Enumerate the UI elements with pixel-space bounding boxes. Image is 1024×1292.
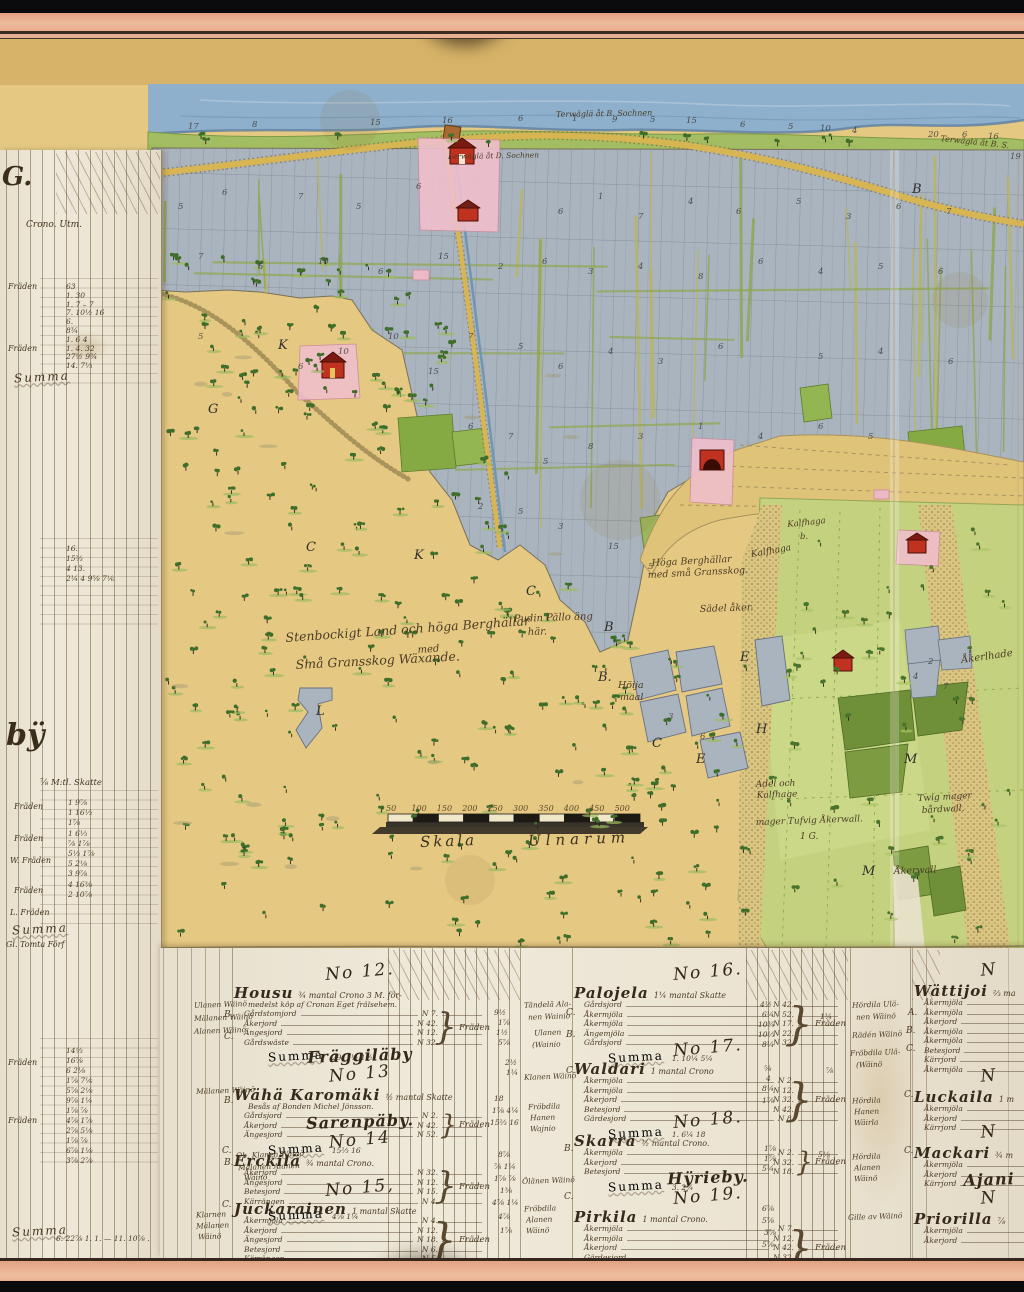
column-divider xyxy=(572,948,573,1258)
frame-edge-top xyxy=(0,0,1024,14)
ledger-slanted-headers xyxy=(388,950,520,1000)
hill-symbol xyxy=(220,862,239,866)
ledger-rows xyxy=(40,278,158,388)
hill-symbol xyxy=(222,392,232,397)
hill-symbol xyxy=(259,444,278,447)
hill-symbol xyxy=(172,684,188,688)
hill-symbol xyxy=(548,552,564,555)
meadow xyxy=(738,498,1024,950)
frame-band-top xyxy=(0,13,1024,32)
column-divider xyxy=(232,948,233,1258)
hill-symbol xyxy=(326,816,340,821)
bottom-ledger-panel xyxy=(160,948,1024,1258)
hill-symbol xyxy=(194,382,207,387)
hill-symbol xyxy=(428,760,440,765)
ledger-rows xyxy=(40,1038,158,1168)
hill-symbol xyxy=(545,374,562,378)
ledger-slanted-headers xyxy=(912,950,940,1000)
hill-symbol xyxy=(410,867,423,871)
frame-rule xyxy=(0,38,1024,39)
historical-map-scan: Skala Ulnarum G. Crono. Utm. bÿ ⅞ M:tl. … xyxy=(0,0,1024,1292)
hill-symbol xyxy=(285,864,297,869)
ledger-slanted-headers xyxy=(746,950,848,1000)
hill-symbol xyxy=(246,802,261,807)
farmstead-icon xyxy=(700,450,724,470)
hill-symbol xyxy=(464,416,480,420)
ledger-column-rules xyxy=(163,948,233,1258)
hill-symbol xyxy=(563,435,579,439)
page-crease xyxy=(1008,948,1009,1258)
hill-symbol xyxy=(572,780,583,784)
ledger-rows xyxy=(40,790,158,930)
hill-symbol xyxy=(224,531,244,535)
ledger-slanted-headers xyxy=(56,152,160,214)
column-divider xyxy=(850,948,851,1258)
ledger-rows xyxy=(40,538,158,630)
column-divider xyxy=(520,948,521,1258)
frame-edge-bottom xyxy=(0,1281,1024,1292)
left-ledger-panel xyxy=(0,150,162,1258)
hill-symbol xyxy=(173,821,193,825)
hill-symbol xyxy=(234,356,252,360)
column-divider xyxy=(910,948,911,1258)
